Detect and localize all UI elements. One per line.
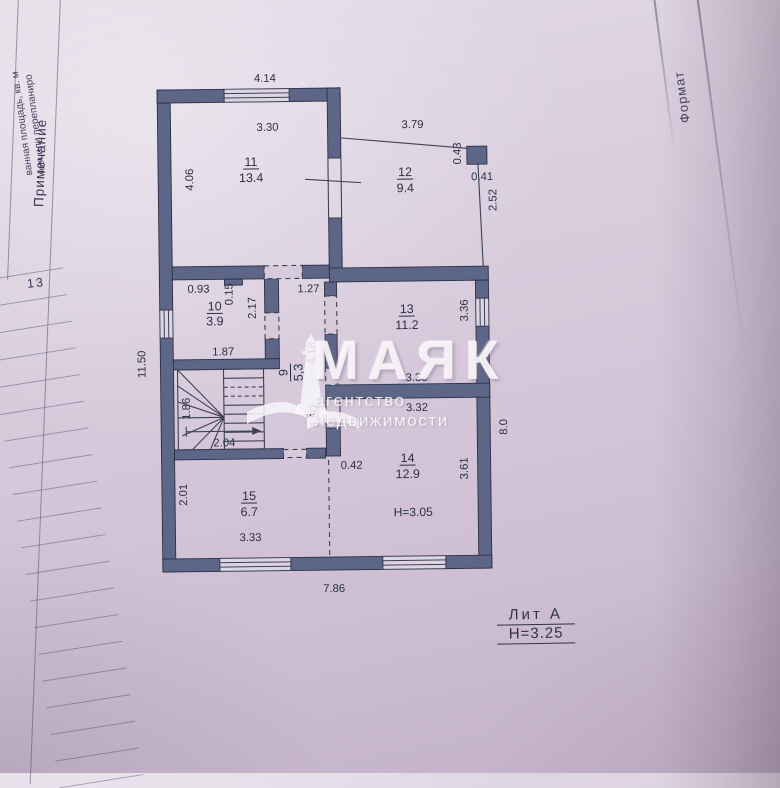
dim-r10-bottom: 1.87 bbox=[212, 346, 234, 358]
room-9-area: 5,3 bbox=[291, 364, 305, 382]
dim-porch-col-h: 0.43 bbox=[452, 142, 464, 164]
dim-porch-col-w: 0.41 bbox=[471, 171, 493, 183]
dim-r10-top: 0.93 bbox=[187, 284, 209, 296]
window bbox=[224, 89, 289, 103]
dim-r13-bottom: 3.33 bbox=[406, 372, 428, 384]
dashed-opening bbox=[264, 265, 302, 278]
wall bbox=[302, 265, 329, 278]
window bbox=[160, 310, 173, 338]
wall bbox=[327, 88, 341, 158]
wall-stub bbox=[306, 448, 325, 458]
dim-porch-right: 2.52 bbox=[487, 189, 499, 211]
floorplan-drawing: 11 13.4 12 9.4 10 3.9 9 5,3 13 11.2 14 1… bbox=[132, 48, 534, 613]
dim-hall-opening: 1.27 bbox=[297, 283, 319, 295]
dashed-opening bbox=[283, 449, 306, 457]
room-14-number: 14 bbox=[401, 451, 415, 465]
dimensions: 4.14 3.30 4.06 11.50 3.79 0.43 0.41 2.52… bbox=[133, 70, 512, 598]
wall bbox=[264, 279, 278, 313]
wall bbox=[157, 90, 173, 310]
opening-tick bbox=[305, 179, 361, 184]
room-15-area: 6.7 bbox=[240, 505, 258, 519]
litera-height: Н=3.25 bbox=[497, 624, 575, 644]
room-11-number: 11 bbox=[244, 155, 257, 169]
room-9-number: 9 bbox=[276, 369, 290, 376]
porch-column bbox=[467, 146, 487, 164]
room-12-number: 12 bbox=[398, 165, 412, 179]
window bbox=[220, 558, 291, 572]
wall bbox=[174, 449, 283, 460]
room-12-area: 9.4 bbox=[396, 181, 414, 195]
opening-jamb bbox=[328, 158, 342, 218]
table-row-number: 13 bbox=[26, 275, 45, 291]
dim-r10-step: 0.15 bbox=[223, 283, 235, 305]
dim-r14-stub: 0.42 bbox=[341, 460, 363, 472]
wall bbox=[163, 558, 220, 572]
dim-r10-right: 2.17 bbox=[247, 297, 259, 319]
format-frame: Формат bbox=[638, 0, 780, 387]
dim-porch-top: 3.79 bbox=[401, 119, 423, 131]
table-row-lines bbox=[0, 242, 143, 788]
dim-r15-bottom: 3.33 bbox=[239, 532, 261, 544]
dim-top-outer: 4.14 bbox=[254, 73, 276, 85]
dim-r11-top: 3.30 bbox=[256, 122, 278, 134]
dim-r14-right: 3.61 bbox=[459, 457, 471, 479]
dim-stairs-width: 1.86 bbox=[181, 398, 193, 420]
dim-r13-right: 3.36 bbox=[459, 299, 471, 321]
table-note-header: Примечание bbox=[31, 42, 52, 207]
dashed-opening bbox=[325, 296, 337, 334]
frame-line bbox=[695, 0, 745, 349]
wall bbox=[324, 282, 336, 296]
dim-r14-top: 3.32 bbox=[406, 402, 428, 414]
wall bbox=[326, 383, 490, 399]
wall bbox=[329, 266, 488, 282]
dim-stairs-length: 2.04 bbox=[213, 437, 235, 449]
litera-block: Лит А Н=3.25 bbox=[497, 605, 576, 644]
room-13-number: 13 bbox=[400, 302, 414, 316]
dashed-opening bbox=[325, 368, 337, 385]
dim-r14-jamb: 1.50 bbox=[309, 405, 321, 427]
window bbox=[383, 556, 446, 570]
stairs-treads-dashed bbox=[224, 387, 264, 396]
opening-jamb bbox=[326, 399, 340, 428]
porch-edge bbox=[341, 136, 467, 150]
room-13-area: 11.2 bbox=[395, 318, 419, 332]
window bbox=[476, 298, 489, 326]
wall bbox=[172, 266, 264, 280]
room-15-number: 15 bbox=[242, 489, 256, 503]
dashed-partition bbox=[329, 460, 330, 557]
wall-stub bbox=[326, 428, 340, 456]
litera-label: Лит А bbox=[497, 605, 575, 625]
dim-r11-left: 4.06 bbox=[184, 169, 196, 191]
wall bbox=[291, 556, 383, 570]
room-labels: 11 13.4 12 9.4 10 3.9 9 5,3 13 11.2 14 1… bbox=[204, 153, 433, 522]
dim-bottom-outer: 7.86 bbox=[323, 583, 345, 595]
room-11-area: 13.4 bbox=[239, 171, 264, 185]
room-10-area: 3.9 bbox=[206, 314, 224, 328]
arrowhead-icon bbox=[252, 427, 261, 435]
dashed-opening bbox=[265, 313, 279, 339]
room-14-area: 12.9 bbox=[396, 467, 421, 481]
dim-right-outer: 8.0 bbox=[498, 419, 510, 435]
wall bbox=[325, 334, 337, 368]
wall bbox=[157, 89, 224, 103]
dim-left-outer: 11.50 bbox=[136, 351, 148, 379]
room-14-ceiling-height: Н=3.05 bbox=[394, 505, 434, 519]
wall bbox=[265, 339, 279, 359]
wall bbox=[160, 338, 176, 572]
room-10-number: 10 bbox=[208, 299, 222, 313]
wall bbox=[476, 326, 492, 568]
wall bbox=[475, 280, 488, 298]
scanned-floorplan-page: ванная площадь, кв. м ния или перепланир… bbox=[0, 0, 780, 773]
dim-r15-left: 2.01 bbox=[178, 484, 190, 506]
dim-hall-length: 4.18 bbox=[306, 342, 318, 364]
wall bbox=[173, 359, 279, 370]
wall bbox=[446, 555, 492, 569]
